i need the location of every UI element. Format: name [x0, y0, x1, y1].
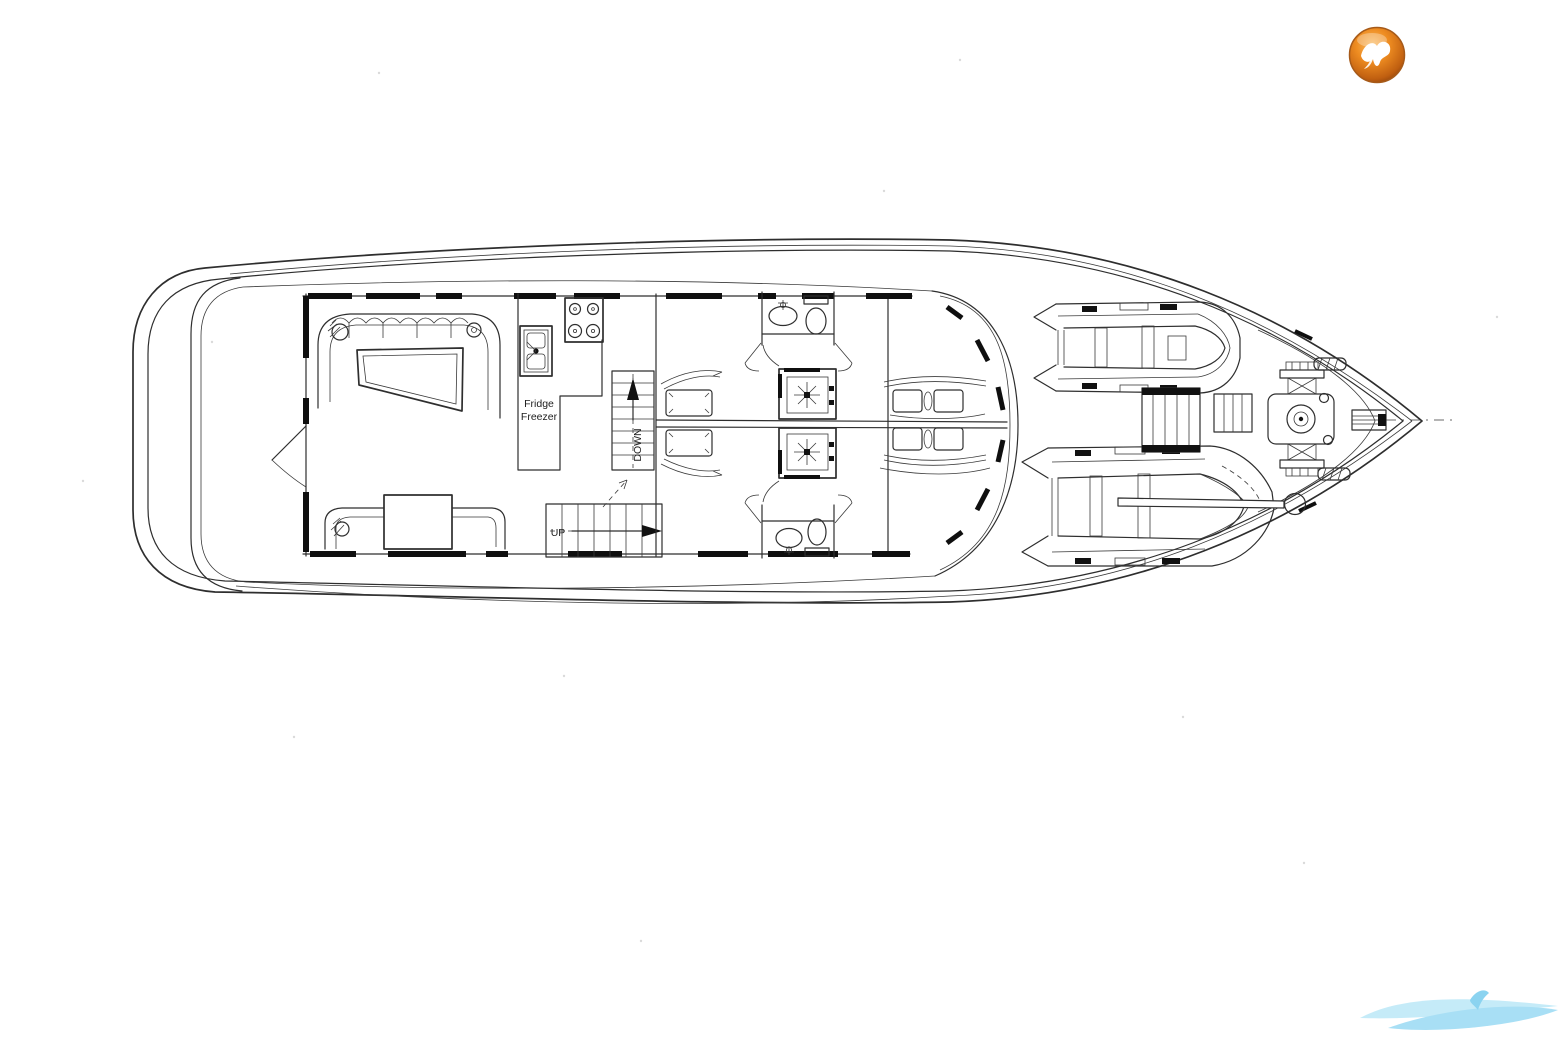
blue-wave-swoosh-watermark	[1358, 988, 1560, 1040]
stairs-up-label: UP	[551, 527, 566, 539]
stairs-down-label: DOWN	[632, 428, 644, 461]
windshield	[932, 291, 1018, 576]
brand-logo[interactable]	[1347, 25, 1407, 85]
galley-counter	[518, 294, 602, 470]
fridge-label-line1: Fridge	[524, 398, 554, 410]
stern-cockpit-lines	[191, 278, 246, 591]
salon-table	[357, 348, 463, 411]
fridge-freezer-label: Fridge Freezer	[521, 398, 558, 423]
salon-aft-table	[384, 495, 452, 549]
shower-starboard	[763, 428, 836, 502]
forward-berth-starboard	[880, 428, 990, 474]
deck-hatch-large	[1142, 388, 1200, 452]
deck-plan-drawing: Fridge Freezer DOWN UP	[0, 0, 1560, 1040]
watermark	[1358, 988, 1560, 1040]
salon-aft-door	[272, 426, 306, 487]
galley-stove	[565, 298, 603, 342]
deck-ring-circles	[1320, 394, 1333, 445]
deck-hatch-small	[1214, 394, 1252, 432]
anchor-windlass	[1268, 362, 1334, 476]
stairs-down: DOWN	[612, 371, 654, 470]
davit-arm	[1118, 494, 1306, 515]
cabin-berth-starboard	[661, 430, 722, 477]
galley-sink	[520, 326, 552, 376]
shower-port	[763, 345, 836, 419]
cabin-berth-port	[661, 371, 722, 417]
floor-plan-page: Fridge Freezer DOWN UP	[0, 0, 1560, 1040]
orange-sphere-bird-logo	[1347, 25, 1407, 85]
stairs-up: UP	[546, 480, 662, 557]
fridge-label-line2: Freezer	[521, 411, 558, 423]
tender-port	[1034, 302, 1240, 393]
bathroom-port	[745, 292, 852, 371]
corridor-partition	[656, 294, 1007, 556]
bathroom-starboard	[745, 495, 852, 558]
forward-berth-port	[884, 377, 986, 419]
